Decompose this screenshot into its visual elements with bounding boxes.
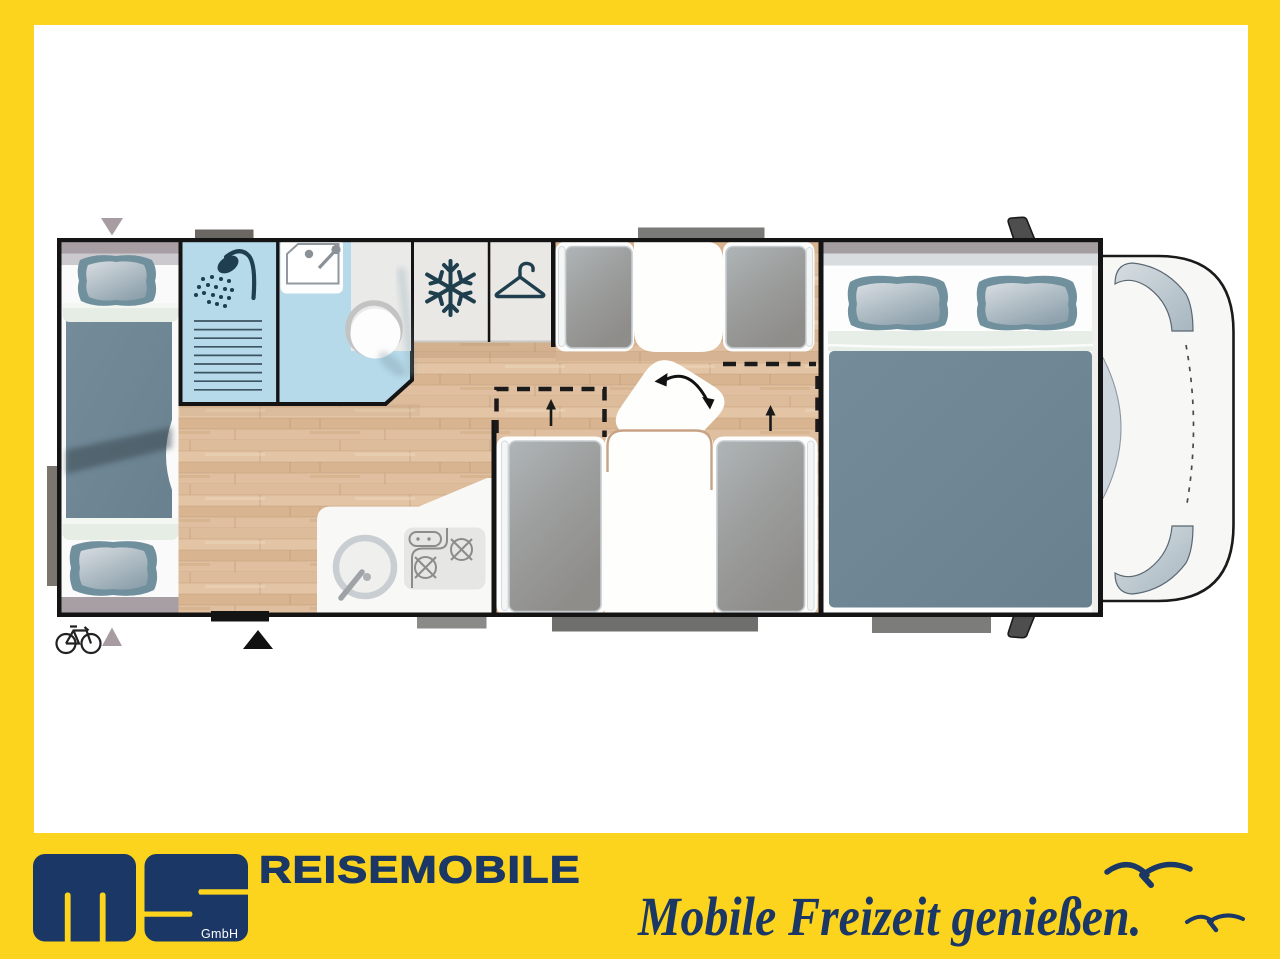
svg-text:GmbH: GmbH <box>201 927 238 941</box>
svg-text:REISEMOBILE: REISEMOBILE <box>259 848 581 891</box>
svg-text:Mobile Freizeit genießen.: Mobile Freizeit genießen. <box>637 887 1141 948</box>
